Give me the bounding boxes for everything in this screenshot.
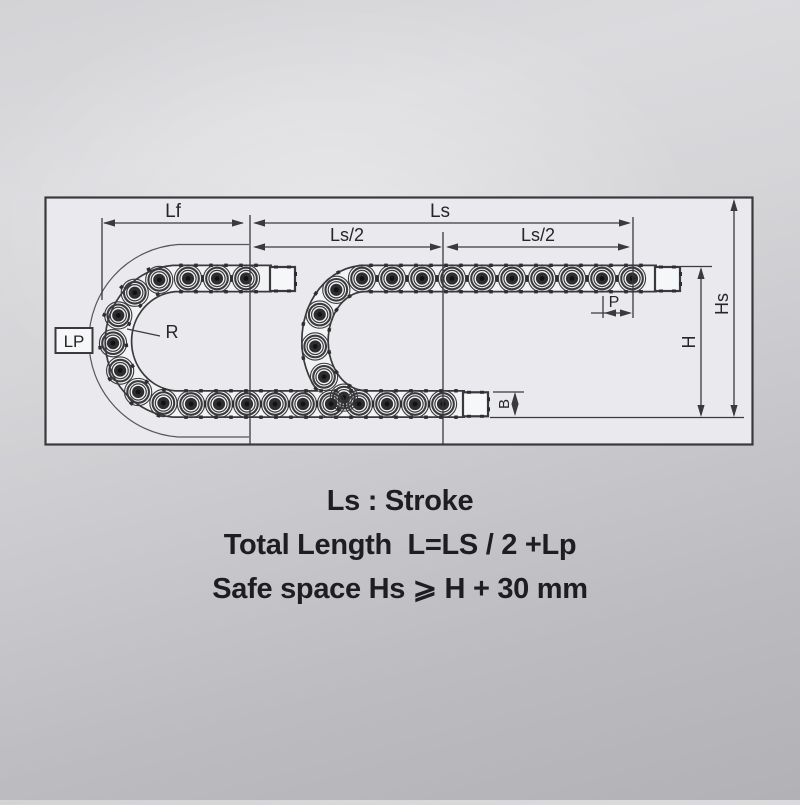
dim-label-b: B [496,399,513,409]
dim-label-p: P [609,294,620,311]
radius-label: R [166,322,179,342]
dim-label-h: H [679,336,699,349]
formula-notes: Ls : Stroke Total Length L=LS / 2 +Lp Sa… [0,479,800,611]
technical-diagram: Lf Ls Ls/2 Ls/2 P R LP H Hs B Ls : Strok… [0,0,800,800]
formula-line-stroke: Ls : Stroke [0,479,800,523]
dim-label-ls2-right: Ls/2 [521,225,555,245]
dim-label-lf: Lf [165,201,182,222]
drag-chain-stroke-diagram: Lf Ls Ls/2 Ls/2 P R LP H Hs B [0,0,800,800]
formula-line-total-length: Total Length L=LS / 2 +Lp [0,523,800,567]
dim-label-ls: Ls [430,201,450,222]
end-bracket-extended [655,266,682,293]
end-bracket-fixed [463,391,490,418]
dim-label-ls2-left: Ls/2 [330,225,364,245]
end-bracket-retracted [270,266,297,293]
dim-label-hs: Hs [712,293,732,315]
formula-line-safe-space: Safe space Hs ⩾ H + 30 mm [0,567,800,611]
fixed-point-label: LP [64,332,85,351]
